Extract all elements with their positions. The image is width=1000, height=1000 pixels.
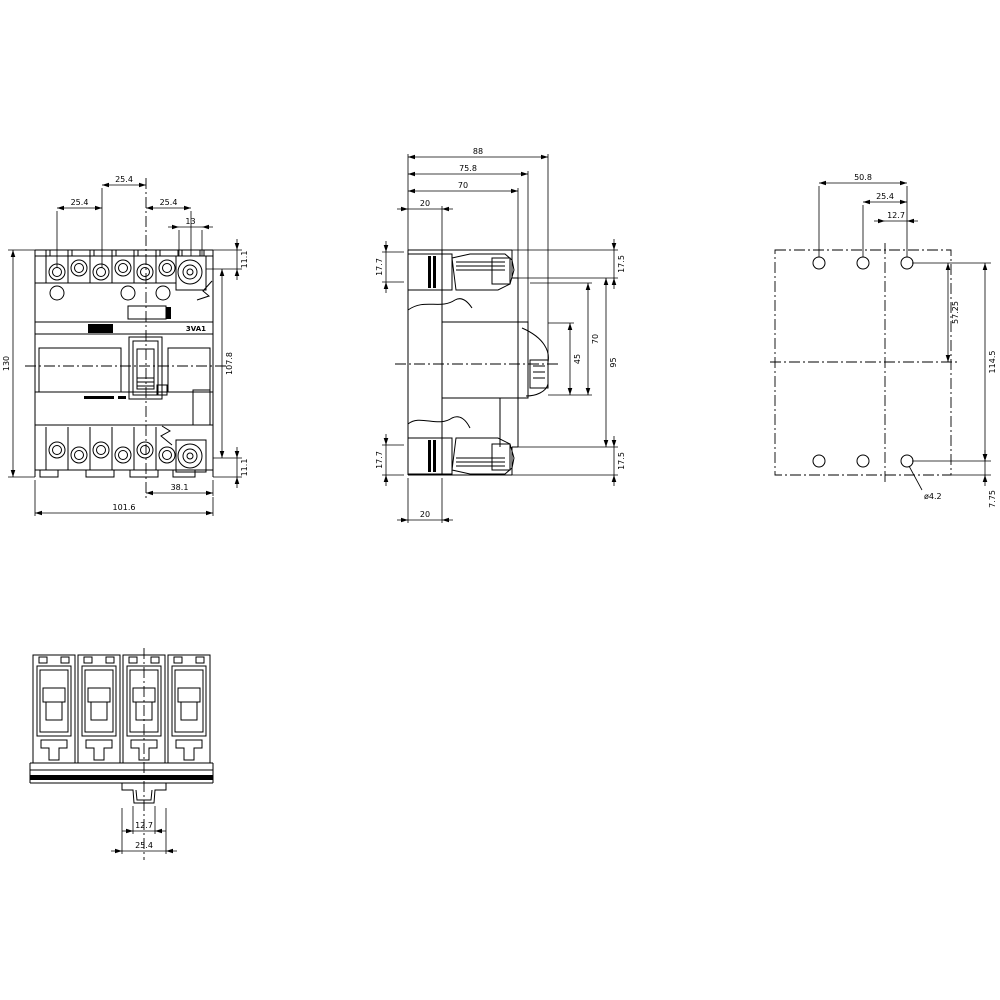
dim-label: 57.25	[951, 301, 960, 324]
dim-label: 17.7	[375, 258, 384, 276]
dim-label: 70	[458, 181, 468, 190]
dim-label: 7.75	[988, 490, 997, 508]
dim-label: 17.5	[617, 255, 626, 273]
dim-label: 17.5	[617, 452, 626, 470]
busbar	[433, 256, 436, 288]
dim-label: 11.1	[240, 251, 249, 269]
dim-label: 25.4	[71, 198, 89, 207]
dim-label: 11.1	[240, 459, 249, 477]
dim-label: 25.4	[160, 198, 178, 207]
front-label-block	[84, 396, 114, 399]
dim-label: 114.5	[988, 351, 997, 374]
dim-label: 107.8	[225, 352, 234, 375]
dim-label: 50.8	[854, 173, 872, 182]
dim-label: 25.4	[115, 175, 133, 184]
dim-label: 70	[591, 334, 600, 344]
dim-label: 38.1	[171, 483, 189, 492]
dim-label: 13	[185, 217, 195, 226]
dim-label: 12.7	[887, 211, 905, 220]
dim-label: 12.7	[135, 821, 153, 830]
dim-label: 25.4	[876, 192, 894, 201]
dim-label: 45	[573, 354, 582, 364]
busbar	[433, 440, 436, 472]
background	[0, 0, 1000, 1000]
drawing-canvas: 3VA1ø4.225.425.425.41311.1130107.811.138…	[0, 0, 1000, 1000]
dim-label: 75.8	[459, 164, 477, 173]
din-rail-slot	[30, 775, 213, 780]
busbar	[428, 256, 431, 288]
product-label: 3VA1	[186, 325, 206, 333]
dim-label: 20	[420, 510, 430, 519]
hole-diameter-label: ø4.2	[924, 492, 942, 501]
front-label-block	[166, 307, 171, 319]
dim-label: 95	[609, 357, 618, 367]
front-label-block	[88, 324, 113, 333]
dim-label: 130	[2, 356, 11, 371]
dim-label: 88	[473, 147, 483, 156]
dim-label: 20	[420, 199, 430, 208]
dim-label: 25.4	[135, 841, 153, 850]
front-label-block	[118, 396, 126, 399]
dimension-drawing: 3VA1ø4.225.425.425.41311.1130107.811.138…	[0, 0, 1000, 1000]
busbar	[428, 440, 431, 472]
dim-label: 17.7	[375, 451, 384, 469]
dim-label: 101.6	[113, 503, 136, 512]
